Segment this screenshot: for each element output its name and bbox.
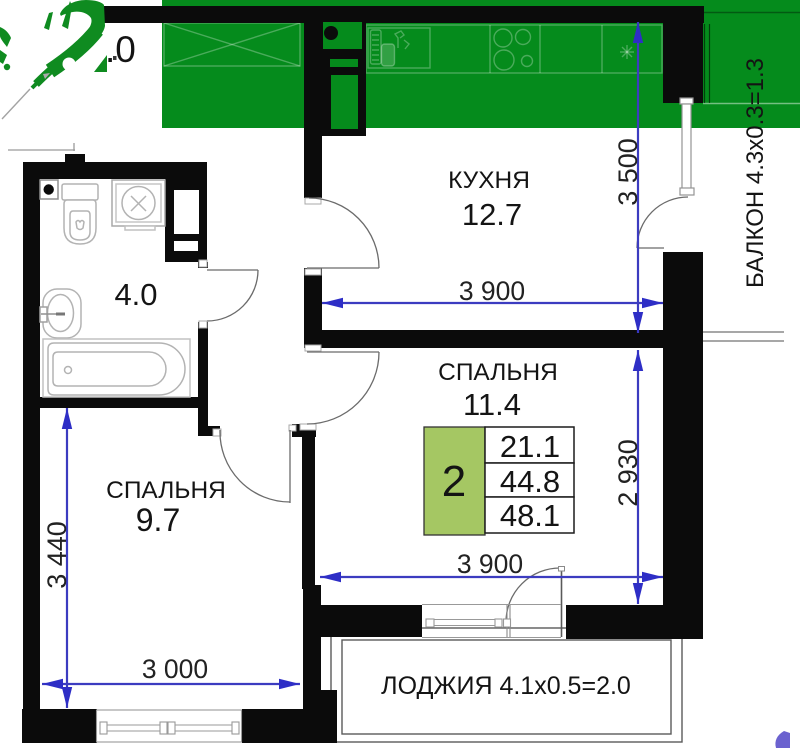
svg-text:СПАЛЬНЯ: СПАЛЬНЯ	[106, 477, 226, 504]
svg-text:3 900: 3 900	[457, 549, 523, 579]
svg-text:44.8: 44.8	[500, 464, 560, 499]
svg-text:2: 2	[442, 457, 466, 506]
svg-text:48.1: 48.1	[500, 498, 560, 533]
svg-text:БАЛКОН 4.3х0.3=1.3: БАЛКОН 4.3х0.3=1.3	[742, 58, 769, 288]
svg-text:СПАЛЬНЯ: СПАЛЬНЯ	[438, 359, 558, 386]
svg-text:11.4: 11.4	[463, 387, 521, 422]
svg-text:4.0: 4.0	[114, 277, 157, 312]
svg-text:КУХНЯ: КУХНЯ	[448, 167, 530, 194]
svg-text:12.7: 12.7	[462, 197, 522, 232]
svg-text:3 000: 3 000	[142, 654, 208, 684]
svg-text:.0: .0	[105, 29, 136, 70]
svg-text:9.7: 9.7	[136, 502, 180, 538]
svg-text:3 500: 3 500	[613, 138, 643, 206]
svg-text:ЛОДЖИЯ 4.1х0.5=2.0: ЛОДЖИЯ 4.1х0.5=2.0	[381, 672, 631, 700]
svg-text:21.1: 21.1	[500, 429, 560, 464]
svg-text:3 440: 3 440	[42, 521, 72, 589]
svg-text:3 900: 3 900	[459, 276, 525, 306]
svg-text:2 930: 2 930	[613, 439, 643, 507]
